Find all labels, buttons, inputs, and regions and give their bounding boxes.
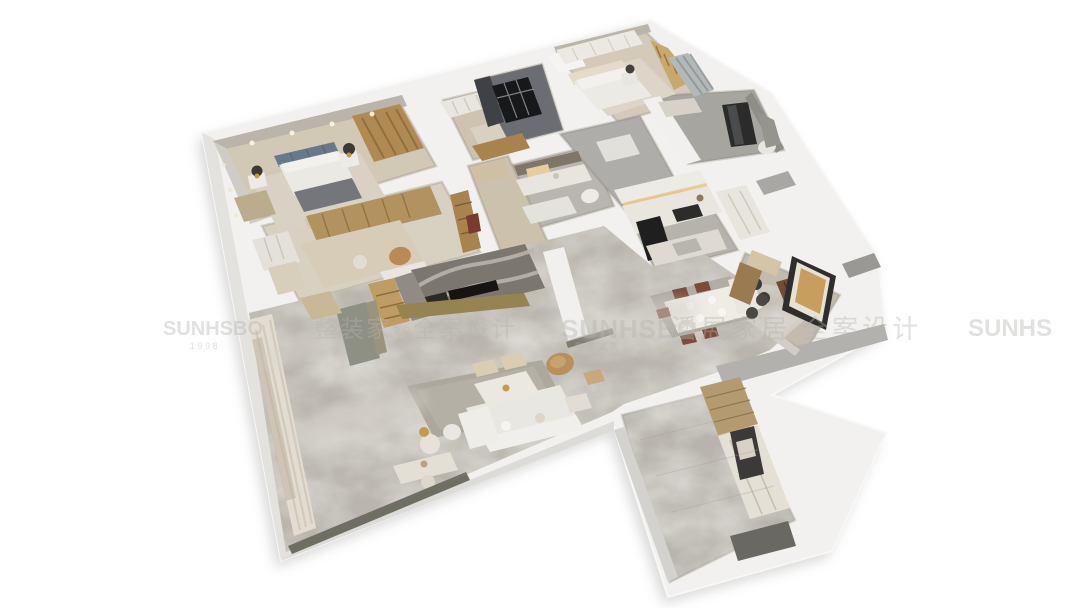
svg-text:1 9 9 8: 1 9 9 8 [190,341,218,351]
svg-text:SUNHS: SUNHS [968,315,1052,342]
svg-text:SUNHSBO: SUNHSBO [163,318,263,340]
svg-text:潘展家居 全案设计: 潘展家居 全案设计 [671,314,922,344]
svg-text:整 装 家 装: 整 装 家 装 [575,341,619,352]
svg-text:整装家◦◦全案设计: 整装家◦◦全案设计 [314,316,517,343]
